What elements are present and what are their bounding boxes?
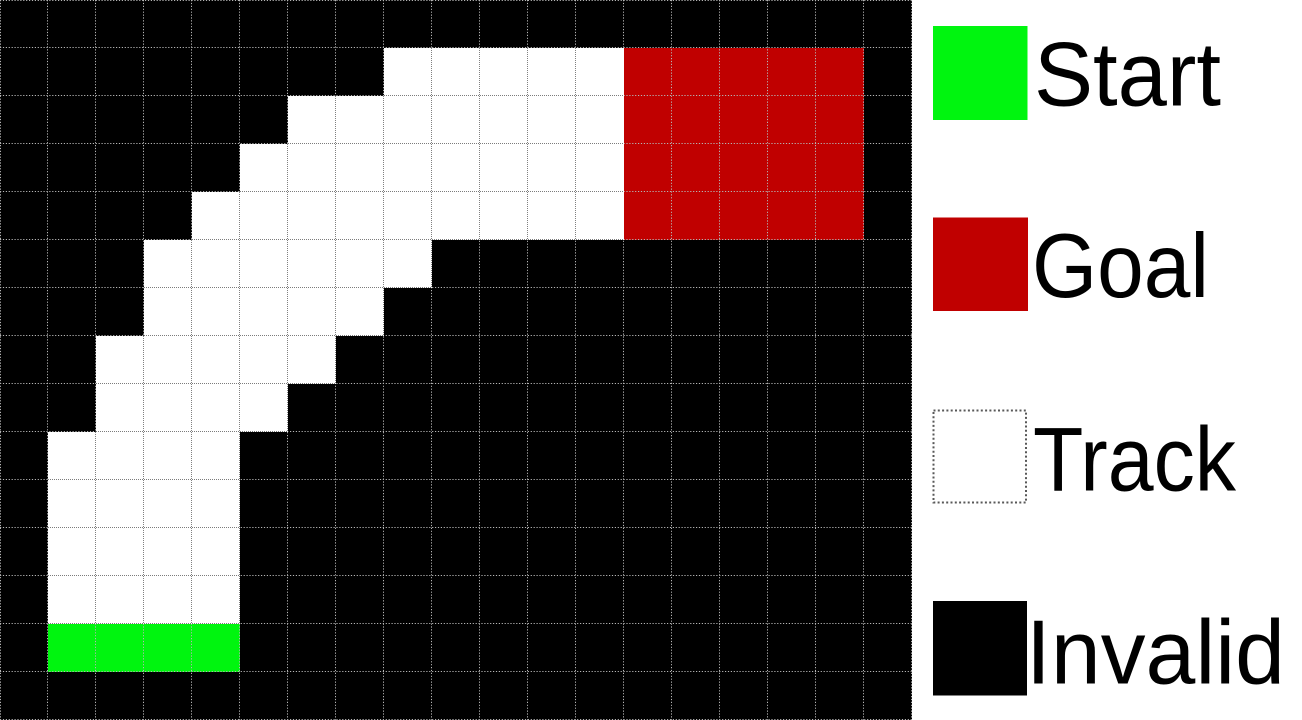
- svg-text:Invalid: Invalid: [1026, 603, 1285, 704]
- svg-text:Track: Track: [1033, 410, 1236, 511]
- svg-text:Goal: Goal: [1032, 216, 1209, 317]
- svg-text:Start: Start: [1034, 25, 1221, 126]
